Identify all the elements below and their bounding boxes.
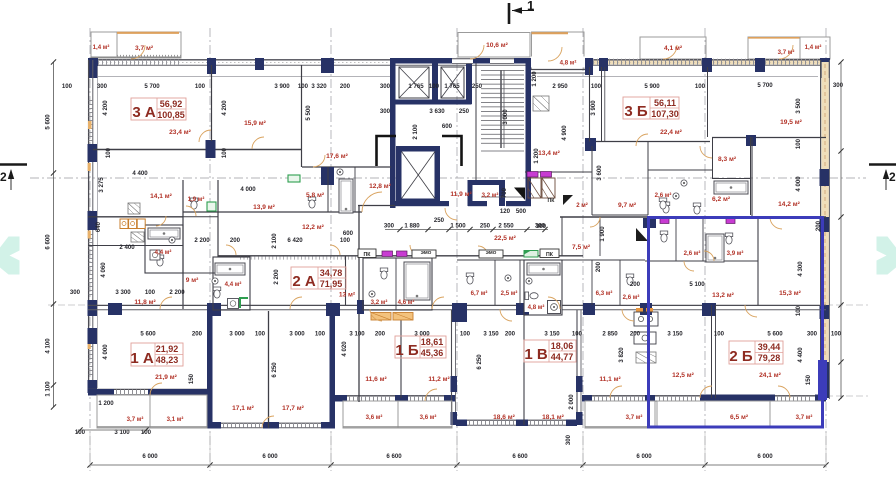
svg-text:6 250: 6 250: [476, 354, 483, 370]
svg-text:2: 2: [889, 170, 896, 184]
svg-text:4 900: 4 900: [561, 125, 568, 141]
svg-text:200: 200: [375, 331, 386, 338]
svg-text:11,2 м²: 11,2 м²: [428, 376, 450, 383]
svg-text:34,78: 34,78: [320, 268, 343, 278]
svg-text:22,4 м²: 22,4 м²: [660, 129, 683, 136]
svg-text:2 Б: 2 Б: [729, 348, 753, 365]
svg-text:107,30: 107,30: [651, 109, 679, 119]
svg-text:100: 100: [460, 331, 471, 338]
svg-text:2 А: 2 А: [292, 273, 316, 290]
svg-text:3,9 м²: 3,9 м²: [727, 250, 744, 257]
svg-text:5 900: 5 900: [644, 83, 660, 90]
svg-text:21,92: 21,92: [156, 344, 179, 354]
svg-text:2 000: 2 000: [568, 394, 575, 410]
svg-text:4 400: 4 400: [797, 347, 804, 363]
svg-text:17,6 м²: 17,6 м²: [326, 153, 349, 160]
svg-text:6 000: 6 000: [142, 453, 158, 460]
svg-text:100: 100: [340, 237, 351, 244]
svg-text:2,6 м²: 2,6 м²: [623, 294, 640, 301]
svg-text:250: 250: [472, 83, 483, 90]
svg-text:18,06: 18,06: [551, 341, 574, 351]
svg-text:5,8 м²: 5,8 м²: [306, 192, 325, 199]
svg-text:100: 100: [695, 83, 706, 90]
svg-text:3 000: 3 000: [229, 331, 245, 338]
svg-text:3 500: 3 500: [795, 98, 802, 114]
svg-text:3 150: 3 150: [667, 331, 683, 338]
svg-text:300: 300: [807, 331, 818, 338]
svg-text:640: 640: [95, 221, 102, 232]
svg-text:48,23: 48,23: [156, 355, 179, 365]
svg-text:5 500: 5 500: [305, 105, 312, 121]
svg-text:6 000: 6 000: [636, 453, 652, 460]
svg-text:300: 300: [380, 108, 391, 115]
svg-text:6,3 м²: 6,3 м²: [596, 290, 613, 297]
svg-text:15,3 м²: 15,3 м²: [779, 290, 802, 297]
svg-text:3 150: 3 150: [483, 331, 499, 338]
svg-text:22,5 м²: 22,5 м²: [494, 235, 517, 242]
svg-text:13,4 м²: 13,4 м²: [538, 150, 561, 157]
svg-text:3 275: 3 275: [98, 177, 105, 193]
svg-text:17,1 м²: 17,1 м²: [232, 405, 255, 412]
svg-text:3 630: 3 630: [429, 108, 445, 115]
svg-text:12,5 м²: 12,5 м²: [672, 372, 695, 379]
svg-text:4 400: 4 400: [132, 170, 148, 177]
svg-text:2 850: 2 850: [602, 331, 618, 338]
svg-text:1 100: 1 100: [45, 381, 52, 397]
svg-text:6 600: 6 600: [45, 234, 52, 250]
svg-text:3 300: 3 300: [115, 289, 131, 296]
svg-text:2 200: 2 200: [194, 237, 210, 244]
svg-text:23,4 м²: 23,4 м²: [169, 129, 192, 136]
svg-text:150: 150: [805, 374, 812, 385]
svg-text:4 100: 4 100: [45, 338, 52, 354]
svg-text:9 м²: 9 м²: [186, 277, 199, 284]
svg-text:600: 600: [343, 230, 354, 237]
svg-text:6,5 м²: 6,5 м²: [730, 414, 749, 421]
svg-text:200: 200: [192, 331, 203, 338]
svg-text:100: 100: [195, 83, 206, 90]
svg-text:2,5 м²: 2,5 м²: [501, 290, 518, 297]
svg-text:3 000: 3 000: [502, 109, 509, 125]
svg-text:100: 100: [795, 305, 802, 316]
svg-text:11,6 м²: 11,6 м²: [365, 376, 387, 383]
svg-text:120: 120: [500, 208, 511, 215]
svg-text:3 Б: 3 Б: [624, 103, 648, 120]
svg-text:1 880: 1 880: [404, 223, 420, 230]
svg-text:300: 300: [565, 434, 572, 445]
svg-text:6 600: 6 600: [512, 453, 528, 460]
svg-text:3,7 м²: 3,7 м²: [135, 45, 154, 52]
svg-text:3,1 м²: 3,1 м²: [167, 416, 184, 423]
svg-text:45,36: 45,36: [421, 348, 444, 358]
svg-text:4 000: 4 000: [102, 344, 109, 360]
svg-text:100: 100: [105, 147, 112, 158]
svg-text:200: 200: [505, 331, 516, 338]
svg-text:300: 300: [380, 83, 391, 90]
svg-text:4,6 м²: 4,6 м²: [398, 299, 415, 306]
svg-text:300: 300: [833, 82, 844, 89]
svg-text:14,1 м²: 14,1 м²: [150, 193, 173, 200]
svg-text:3,6 м²: 3,6 м²: [420, 414, 437, 421]
svg-text:1 200: 1 200: [533, 148, 540, 164]
svg-text:15,9 м²: 15,9 м²: [244, 120, 267, 127]
svg-text:100,85: 100,85: [157, 110, 185, 120]
svg-text:3,2 м²: 3,2 м²: [482, 192, 499, 199]
svg-text:1 Б: 1 Б: [395, 342, 419, 359]
svg-text:300: 300: [70, 289, 81, 296]
svg-text:4 300: 4 300: [797, 261, 804, 277]
svg-text:1,4 м²: 1,4 м²: [93, 44, 110, 51]
svg-text:200: 200: [230, 237, 241, 244]
svg-text:3,7 м²: 3,7 м²: [778, 49, 795, 56]
svg-text:5 100: 5 100: [689, 281, 705, 288]
svg-text:1 900: 1 900: [599, 226, 606, 242]
svg-text:11,8 м²: 11,8 м²: [134, 299, 156, 306]
svg-text:ЭМО: ЭМО: [421, 250, 432, 255]
svg-text:100: 100: [591, 83, 602, 90]
svg-text:2 950: 2 950: [552, 83, 568, 90]
svg-text:5 600: 5 600: [45, 114, 52, 130]
svg-text:18,1 м²: 18,1 м²: [542, 414, 565, 421]
svg-text:200: 200: [630, 331, 641, 338]
svg-text:4 000: 4 000: [795, 176, 802, 192]
svg-text:ПК: ПК: [546, 252, 554, 258]
svg-text:4 200: 4 200: [102, 100, 109, 116]
svg-text:4 000: 4 000: [240, 186, 256, 193]
svg-text:2 200: 2 200: [169, 289, 185, 296]
svg-text:4,4 м²: 4,4 м²: [155, 249, 172, 256]
svg-text:10,6 м²: 10,6 м²: [486, 42, 509, 49]
svg-text:79,28: 79,28: [758, 353, 781, 363]
svg-text:56,11: 56,11: [654, 98, 676, 108]
svg-text:100: 100: [221, 147, 228, 158]
svg-text:2 м²: 2 м²: [576, 202, 588, 209]
svg-text:2: 2: [0, 170, 7, 184]
svg-text:100: 100: [831, 331, 842, 338]
svg-text:44,77: 44,77: [551, 352, 574, 362]
svg-text:3,7 м²: 3,7 м²: [626, 414, 643, 421]
svg-text:2 100: 2 100: [412, 124, 419, 140]
svg-text:3,7 м²: 3,7 м²: [127, 416, 144, 423]
svg-text:24,1 м²: 24,1 м²: [759, 372, 782, 379]
svg-text:100: 100: [572, 331, 583, 338]
svg-text:500: 500: [516, 208, 527, 215]
svg-text:100: 100: [145, 289, 156, 296]
svg-text:13,2 м²: 13,2 м²: [712, 292, 735, 299]
svg-text:4 020: 4 020: [341, 341, 348, 357]
svg-text:100: 100: [315, 331, 326, 338]
svg-text:5 600: 5 600: [140, 331, 156, 338]
svg-text:18,6 м²: 18,6 м²: [493, 414, 516, 421]
svg-text:5 700: 5 700: [144, 83, 160, 90]
svg-text:12,8 м²: 12,8 м²: [369, 183, 392, 190]
svg-text:1 А: 1 А: [130, 350, 154, 367]
svg-text:71,95: 71,95: [320, 279, 343, 289]
svg-text:7,5 м²: 7,5 м²: [572, 244, 591, 251]
svg-text:4,4 м²: 4,4 м²: [225, 281, 242, 288]
svg-text:3,6 м²: 3,6 м²: [366, 414, 383, 421]
svg-text:250: 250: [434, 217, 445, 224]
svg-text:4 200: 4 200: [221, 100, 228, 116]
svg-text:6,7 м²: 6,7 м²: [471, 290, 488, 297]
svg-text:3 150: 3 150: [544, 331, 560, 338]
svg-text:39,44: 39,44: [758, 342, 781, 352]
svg-text:1,4 м²: 1,4 м²: [805, 44, 822, 51]
svg-text:ПК: ПК: [364, 252, 372, 258]
svg-text:1 200: 1 200: [98, 400, 114, 407]
svg-text:21,9 м²: 21,9 м²: [155, 374, 178, 381]
svg-text:3 000: 3 000: [289, 331, 305, 338]
svg-text:3 100: 3 100: [349, 331, 365, 338]
svg-text:ПК: ПК: [548, 198, 556, 204]
svg-text:2,6 м²: 2,6 м²: [684, 250, 701, 257]
svg-text:1,9 м²: 1,9 м²: [188, 196, 205, 203]
svg-text:5 700: 5 700: [757, 82, 773, 89]
svg-text:200: 200: [630, 281, 641, 288]
svg-text:18,61: 18,61: [421, 337, 444, 347]
svg-text:100: 100: [795, 138, 802, 149]
svg-text:3,2 м²: 3,2 м²: [371, 299, 388, 306]
svg-text:3 000: 3 000: [414, 331, 430, 338]
svg-text:100: 100: [429, 83, 440, 90]
svg-text:300: 300: [535, 223, 546, 230]
svg-text:200: 200: [340, 83, 351, 90]
svg-text:4 060: 4 060: [100, 262, 107, 278]
svg-text:11,1 м²: 11,1 м²: [599, 376, 621, 383]
svg-text:100: 100: [714, 331, 725, 338]
svg-text:1 В: 1 В: [524, 346, 548, 363]
svg-text:200: 200: [815, 220, 822, 231]
svg-text:6,2 м²: 6,2 м²: [712, 196, 731, 203]
svg-text:100: 100: [298, 83, 309, 90]
svg-text:3 600: 3 600: [596, 165, 603, 181]
svg-text:250: 250: [459, 108, 470, 115]
svg-text:ЭМО: ЭМО: [486, 250, 497, 255]
svg-text:2 100: 2 100: [271, 233, 278, 249]
svg-text:12,2 м²: 12,2 м²: [302, 224, 325, 231]
svg-text:11,9 м²: 11,9 м²: [450, 191, 472, 198]
svg-text:3,7 м²: 3,7 м²: [796, 414, 813, 421]
svg-text:200: 200: [595, 261, 602, 272]
svg-text:4,1 м²: 4,1 м²: [664, 45, 683, 52]
svg-text:4,8 м²: 4,8 м²: [528, 304, 545, 311]
svg-text:300: 300: [97, 83, 108, 90]
svg-text:1 500: 1 500: [450, 223, 466, 230]
svg-text:17,7 м²: 17,7 м²: [282, 405, 305, 412]
svg-text:19,5 м²: 19,5 м²: [780, 119, 803, 126]
svg-text:100: 100: [255, 331, 266, 338]
svg-text:5 600: 5 600: [767, 331, 783, 338]
svg-text:1 200: 1 200: [531, 71, 538, 87]
svg-text:2 200: 2 200: [273, 269, 280, 285]
svg-text:250: 250: [480, 223, 491, 230]
svg-text:700: 700: [501, 187, 508, 198]
svg-text:4,8 м²: 4,8 м²: [560, 60, 577, 67]
svg-text:2 400: 2 400: [119, 244, 135, 251]
svg-text:6 420: 6 420: [287, 237, 303, 244]
svg-text:8,3 м²: 8,3 м²: [718, 156, 737, 163]
svg-text:100: 100: [62, 83, 73, 90]
svg-text:600: 600: [442, 123, 453, 130]
svg-text:13 м²: 13 м²: [339, 292, 356, 299]
svg-text:14,2 м²: 14,2 м²: [778, 201, 801, 208]
svg-text:2,6 м²: 2,6 м²: [655, 192, 672, 199]
svg-text:2 550: 2 550: [498, 223, 514, 230]
svg-text:6 000: 6 000: [757, 453, 773, 460]
svg-text:1: 1: [527, 0, 534, 13]
svg-text:6 250: 6 250: [271, 362, 278, 378]
svg-text:13,9 м²: 13,9 м²: [253, 204, 276, 211]
svg-text:3 900: 3 900: [590, 100, 597, 116]
svg-text:6 000: 6 000: [262, 453, 278, 460]
svg-text:300: 300: [384, 223, 395, 230]
svg-text:1 765: 1 765: [444, 83, 460, 90]
svg-text:3 А: 3 А: [132, 104, 156, 121]
svg-text:6 600: 6 600: [386, 453, 402, 460]
svg-text:56,92: 56,92: [160, 99, 183, 109]
svg-text:1 765: 1 765: [408, 83, 424, 90]
svg-text:9,7 м²: 9,7 м²: [618, 202, 637, 209]
svg-text:3 820: 3 820: [618, 347, 625, 363]
svg-text:3 320: 3 320: [311, 83, 327, 90]
svg-text:150: 150: [188, 373, 195, 384]
svg-text:3 900: 3 900: [274, 83, 290, 90]
